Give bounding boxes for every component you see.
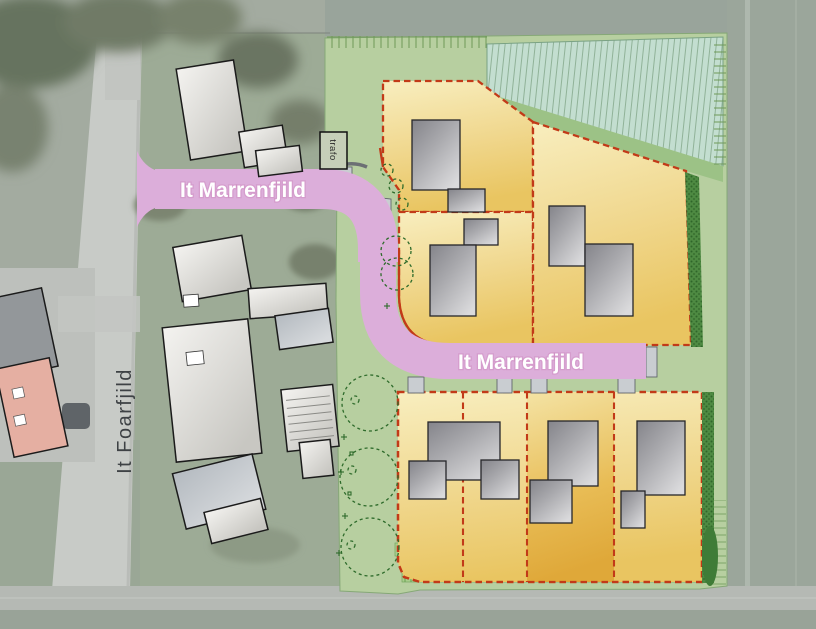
planned-house (430, 245, 476, 316)
planned-annex (409, 461, 446, 499)
street-label-marrenfjild-lower: It Marrenfjild (458, 351, 584, 374)
street-label-marrenfjild-upper: It Marrenfjild (180, 179, 306, 202)
planned-house (412, 120, 460, 190)
trafo-label: trafo (327, 139, 338, 161)
trafo-cabinet: trafo (320, 132, 347, 169)
site-plan-canvas: trafo (0, 0, 816, 629)
planned-house (549, 206, 585, 266)
right-edge-hatch (714, 40, 726, 165)
existing-building (299, 439, 334, 478)
top-edge-hatch (327, 36, 487, 48)
planned-annex (448, 189, 485, 212)
site-plan-svg: trafo (0, 0, 816, 629)
planned-annex (481, 460, 519, 499)
planned-house (637, 421, 685, 495)
existing-building (275, 308, 333, 349)
planned-annex (621, 491, 645, 528)
hedge-blob (702, 526, 718, 586)
existing-building (173, 235, 251, 301)
planned-annex (464, 219, 498, 245)
planned-house (585, 244, 633, 316)
existing-building (256, 145, 303, 176)
existing-building (162, 319, 262, 462)
street-label-foarfjild: It Foarfjild (114, 368, 136, 474)
planned-house (548, 421, 598, 486)
planned-annex (530, 480, 572, 523)
